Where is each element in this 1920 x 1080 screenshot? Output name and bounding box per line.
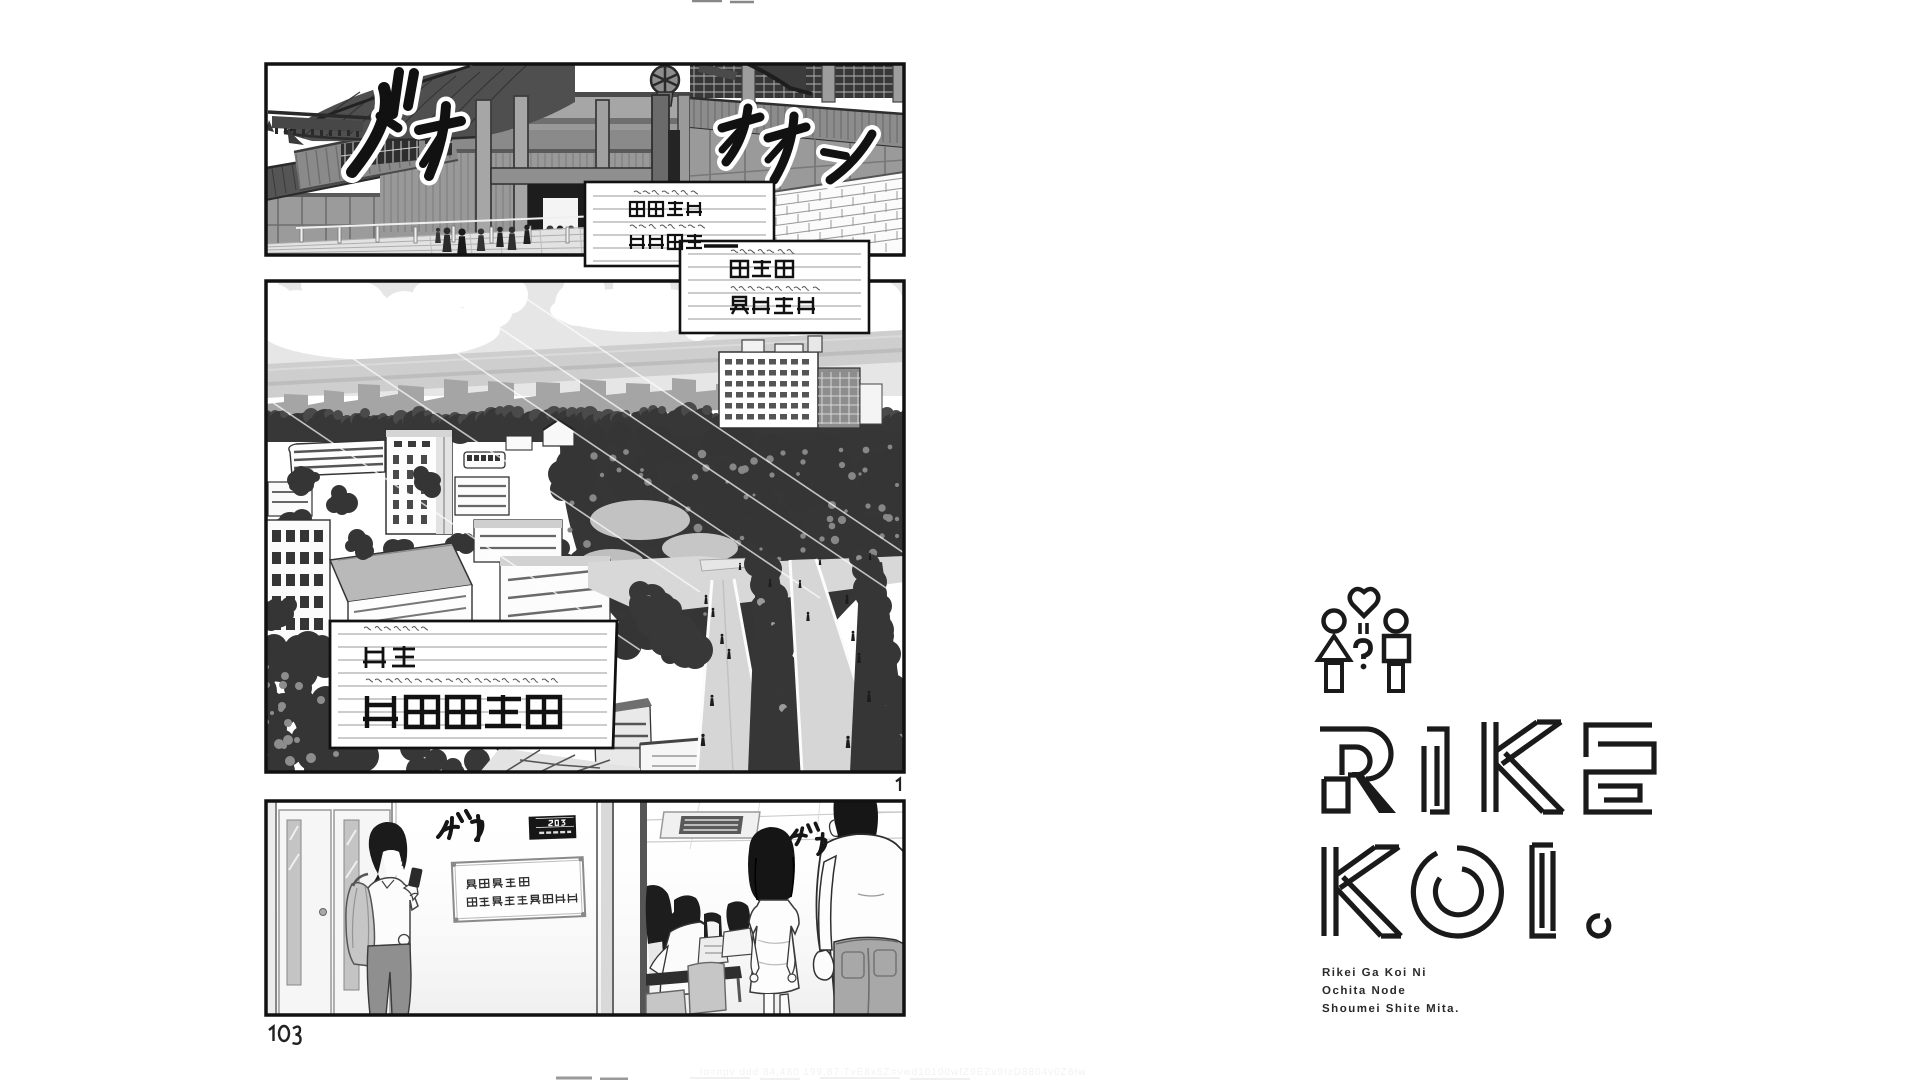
svg-text:Rikei Ga Koi Ni: Rikei Ga Koi Ni <box>1322 967 1427 979</box>
svg-text:Ochita Node: Ochita Node <box>1322 985 1406 997</box>
svg-text:Shoumei Shite Mita.: Shoumei Shite Mita. <box>1322 1003 1460 1015</box>
svg-text:lo=npv ddd 84,480 199.87 TvE8x: lo=npv ddd 84,480 199.87 TvE8x5Z=vwd1010… <box>700 1067 1086 1078</box>
